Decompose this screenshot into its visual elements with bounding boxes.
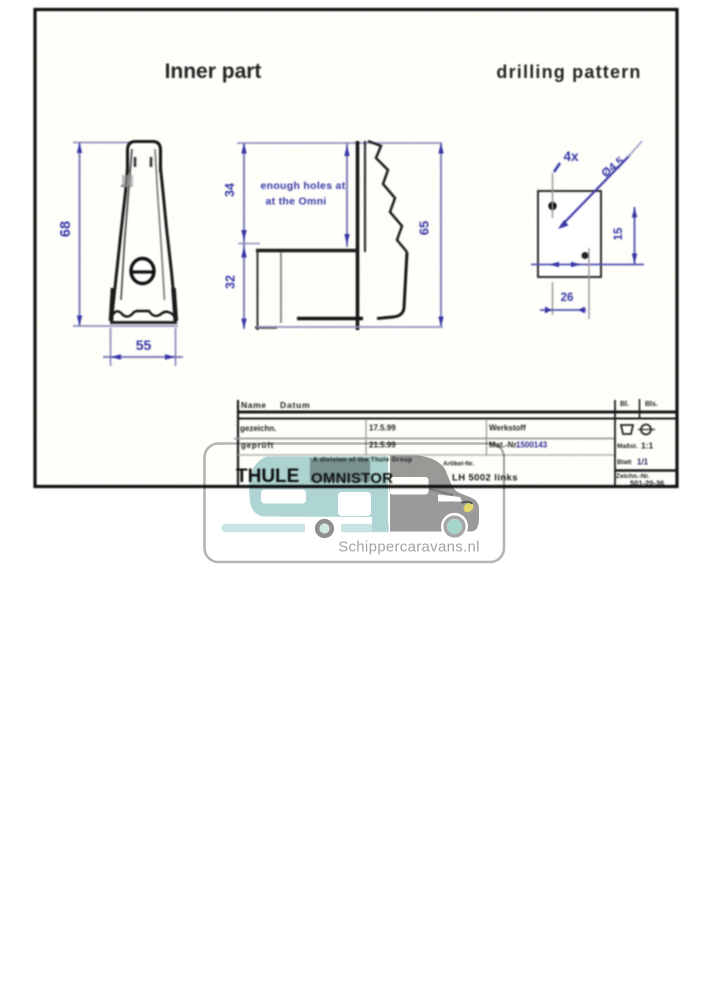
svg-text:Schippercaravans.nl: Schippercaravans.nl xyxy=(338,539,480,556)
svg-text:501-20-36: 501-20-36 xyxy=(630,479,664,488)
svg-text:LH 5002 links: LH 5002 links xyxy=(452,473,518,484)
svg-text:enough holes at: enough holes at xyxy=(260,180,345,192)
svg-text:1500143: 1500143 xyxy=(516,441,548,450)
svg-text:Bl.: Bl. xyxy=(620,401,629,408)
svg-text:Artikel-Nr.: Artikel-Nr. xyxy=(443,461,474,468)
svg-text:Name: Name xyxy=(241,400,267,410)
svg-text:15: 15 xyxy=(613,227,625,240)
svg-text:1:1: 1:1 xyxy=(641,441,654,451)
svg-text:drilling pattern: drilling pattern xyxy=(496,62,641,82)
svg-text:gezeichn.: gezeichn. xyxy=(240,424,276,433)
svg-text:Inner part: Inner part xyxy=(165,60,262,83)
svg-text:1/1: 1/1 xyxy=(637,458,649,467)
svg-text:65: 65 xyxy=(417,221,432,235)
svg-text:Maßst.: Maßst. xyxy=(617,443,638,450)
svg-text:Werkstoff: Werkstoff xyxy=(489,424,526,433)
svg-text:4x: 4x xyxy=(563,149,579,164)
svg-text:21.5.99: 21.5.99 xyxy=(369,441,396,450)
svg-text:26: 26 xyxy=(561,292,574,304)
svg-text:Datum: Datum xyxy=(280,400,310,410)
svg-text:Blatt: Blatt xyxy=(617,459,632,466)
svg-text:32: 32 xyxy=(224,275,238,289)
svg-text:68: 68 xyxy=(58,221,74,237)
svg-text:34: 34 xyxy=(223,183,237,197)
svg-text:at the Omni: at the Omni xyxy=(265,196,326,208)
svg-text:17.5.99: 17.5.99 xyxy=(369,424,396,433)
svg-text:Bls.: Bls. xyxy=(645,401,658,408)
svg-text:55: 55 xyxy=(136,337,152,353)
